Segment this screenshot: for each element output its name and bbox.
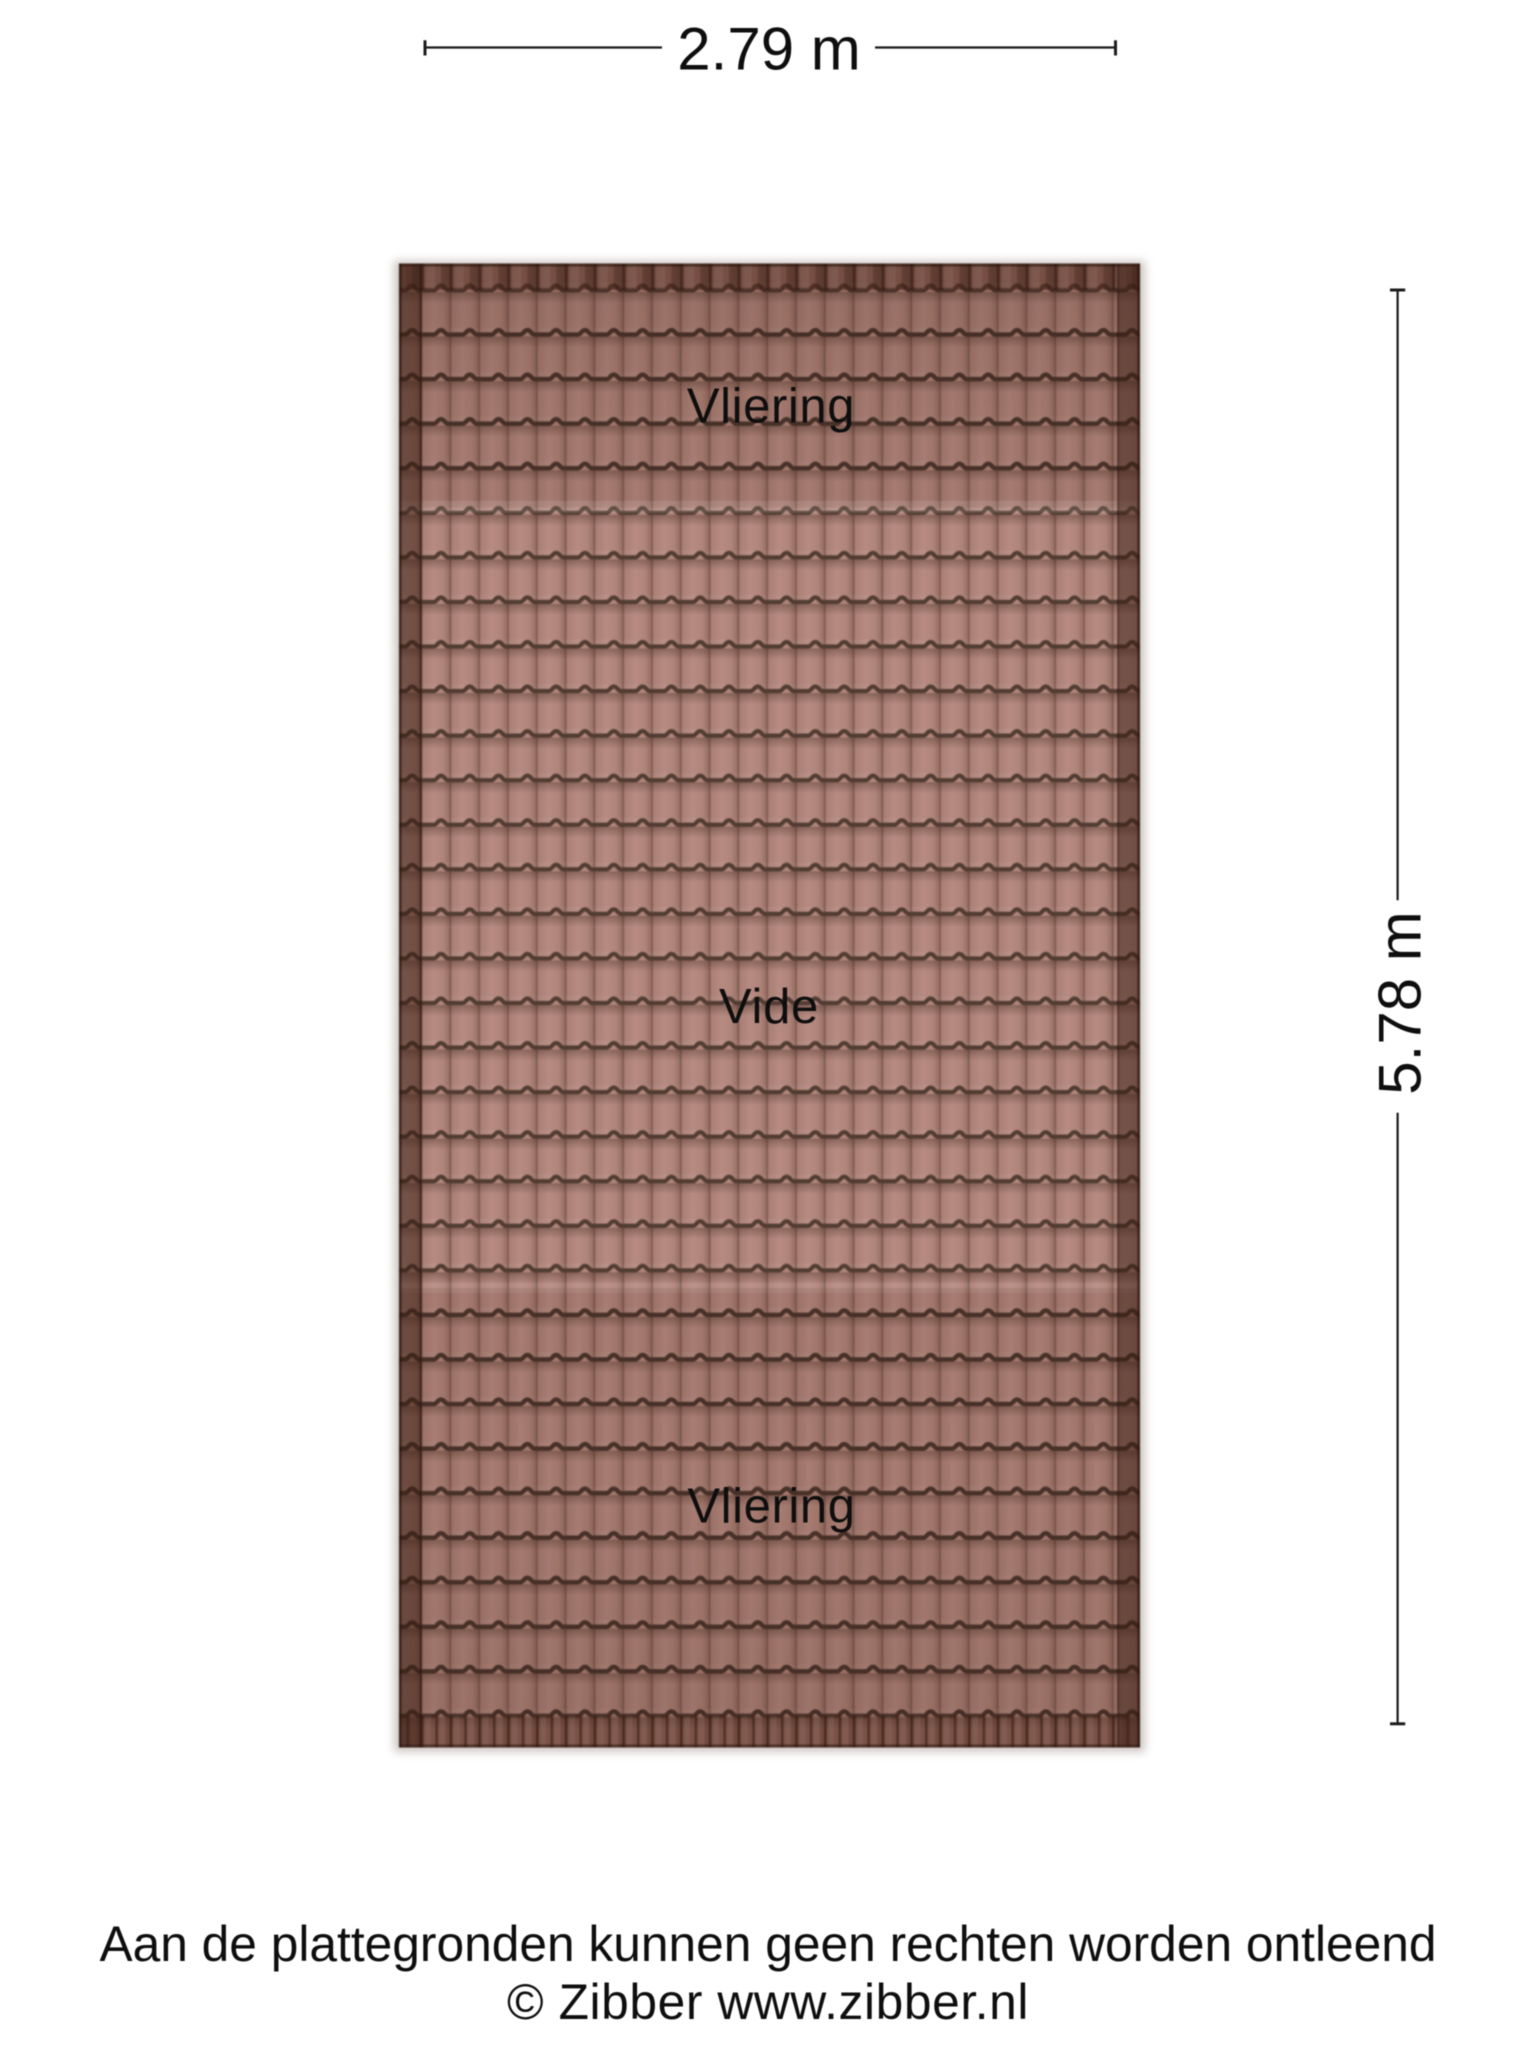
svg-text:Vliering: Vliering [687,1480,855,1534]
svg-text:Vliering: Vliering [687,380,855,434]
svg-text:Aan de plattegronden kunnen ge: Aan de plattegronden kunnen geen rechten… [99,1916,1436,1972]
svg-text:© Zibber www.zibber.nl: © Zibber www.zibber.nl [507,1974,1029,2030]
svg-text:2.79 m: 2.79 m [677,16,860,83]
svg-text:Vide: Vide [719,980,819,1034]
svg-text:5.78 m: 5.78 m [1367,911,1434,1094]
